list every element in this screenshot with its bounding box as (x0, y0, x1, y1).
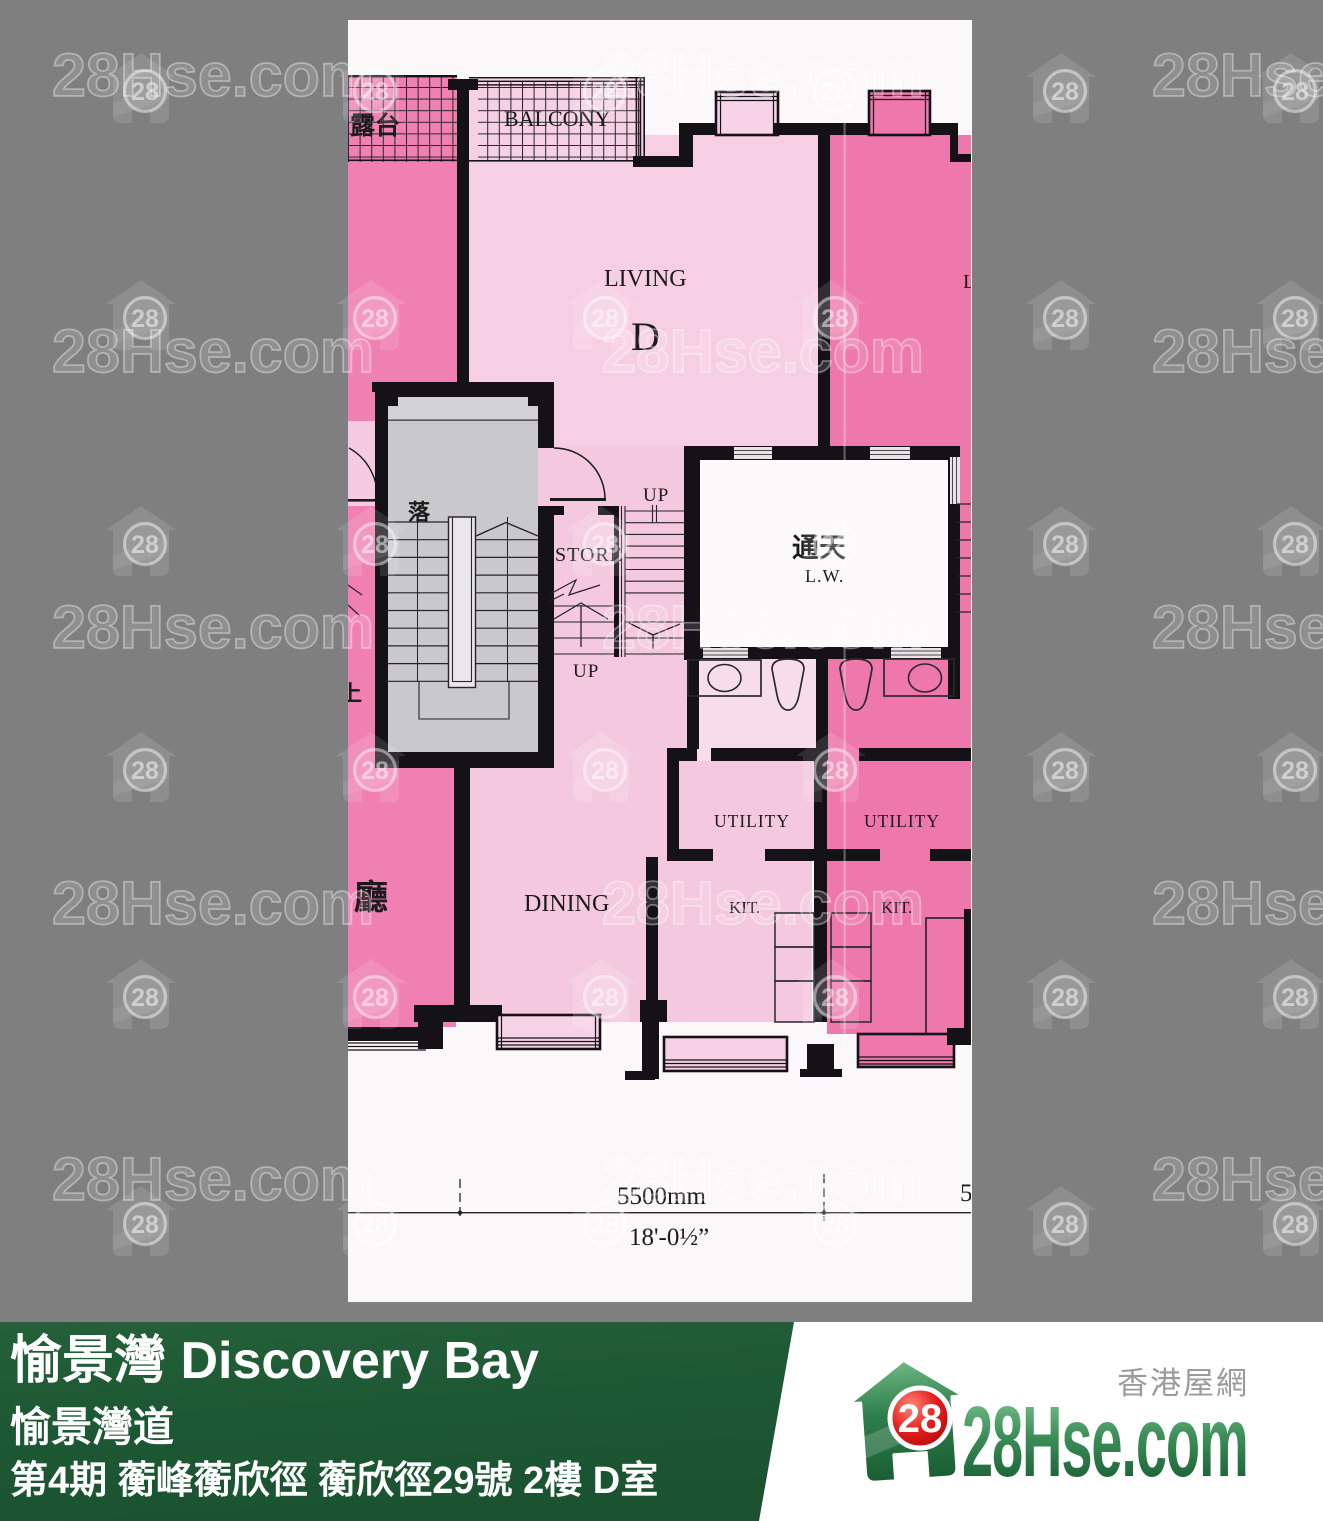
svg-text:28Hse.com: 28Hse.com (602, 869, 924, 937)
svg-text:28Hse.com: 28Hse.com (602, 317, 924, 385)
svg-text:28Hse.com: 28Hse.com (602, 41, 924, 109)
svg-text:28Hse.com: 28Hse.com (1152, 317, 1323, 385)
svg-text:28Hse.com: 28Hse.com (1152, 1145, 1323, 1213)
svg-text:28Hse.com: 28Hse.com (52, 317, 374, 385)
svg-text:28Hse.com: 28Hse.com (1152, 593, 1323, 661)
svg-text:28Hse.com: 28Hse.com (602, 1145, 924, 1213)
svg-text:28Hse.com: 28Hse.com (1152, 41, 1323, 109)
svg-text:28: 28 (898, 1397, 943, 1441)
svg-text:28Hse.com: 28Hse.com (52, 869, 374, 937)
svg-text:28Hse.com: 28Hse.com (602, 593, 924, 661)
svg-text:28Hse.com: 28Hse.com (52, 41, 374, 109)
svg-text:28Hse.com: 28Hse.com (52, 1145, 374, 1213)
svg-text:28Hse.com: 28Hse.com (1152, 869, 1323, 937)
svg-text:28Hse.com: 28Hse.com (52, 593, 374, 661)
